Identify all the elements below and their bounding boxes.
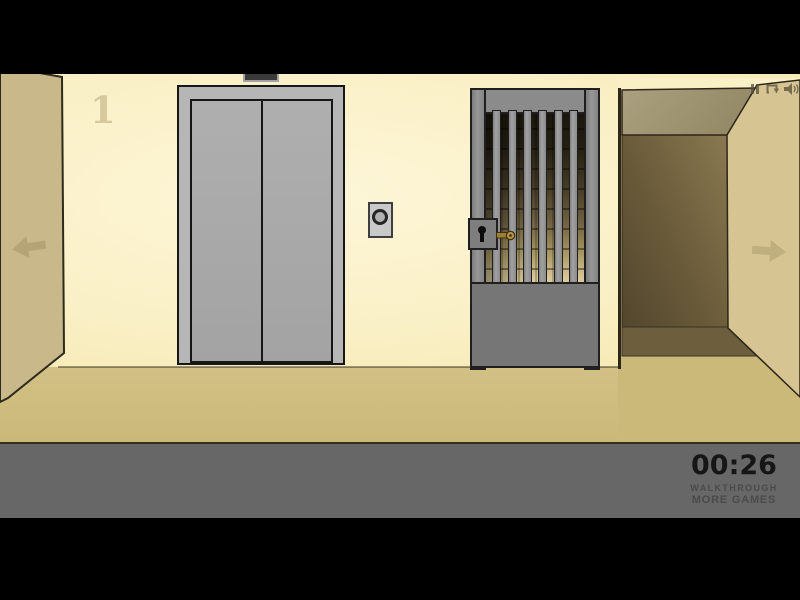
keyhole-icon <box>478 226 486 234</box>
gate-bar <box>569 110 578 286</box>
game-stage: 1 <box>0 0 800 600</box>
navigate-right-button[interactable] <box>751 235 787 268</box>
hud-icons <box>750 83 800 95</box>
gate-bar <box>508 110 517 286</box>
elevator-door-left[interactable] <box>192 101 261 361</box>
pause-button[interactable] <box>750 83 760 95</box>
gate-header <box>470 88 600 114</box>
wall-edge-line <box>618 88 621 369</box>
hud-band: 00:26 WALKTHROUGH MORE GAMES <box>0 442 800 518</box>
gate-bar <box>523 110 532 286</box>
more-games-link[interactable]: MORE GAMES <box>688 494 780 506</box>
walkthrough-link[interactable]: WALKTHROUGH <box>688 483 780 493</box>
gate-bar <box>538 110 547 286</box>
letterbox-bottom <box>0 518 800 600</box>
arrow-left-icon <box>10 230 48 262</box>
sound-icon <box>784 83 800 95</box>
key-icon[interactable] <box>496 230 516 241</box>
timer: 00:26 <box>688 450 780 481</box>
gate-lock[interactable] <box>468 218 498 250</box>
letterbox-top <box>0 0 800 74</box>
floor-number: 1 <box>90 88 116 132</box>
elevator-call-panel <box>368 202 393 238</box>
arrow-right-icon <box>751 235 787 265</box>
replay-button[interactable] <box>765 83 779 95</box>
navigate-left-button[interactable] <box>10 230 48 265</box>
elevator-doors[interactable] <box>190 99 333 363</box>
barred-gate[interactable] <box>466 86 602 370</box>
gate-bar <box>554 110 563 286</box>
elevator-call-button[interactable] <box>372 209 388 225</box>
corridor-interior <box>622 135 728 356</box>
pause-icon <box>750 83 760 95</box>
timer-block: 00:26 WALKTHROUGH MORE GAMES <box>688 450 780 506</box>
sound-button[interactable] <box>784 83 800 95</box>
gate-bar <box>492 110 501 286</box>
gate-bottom-panel <box>470 282 600 368</box>
replay-icon <box>765 83 779 95</box>
elevator-door-right[interactable] <box>263 101 332 361</box>
